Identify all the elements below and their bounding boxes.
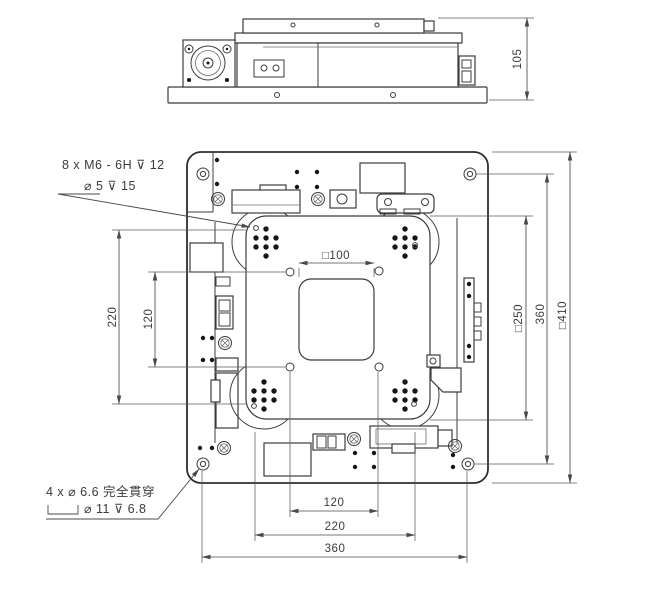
top-protrusion-block	[360, 163, 405, 193]
tapped-callout-line2: ⌀ 5 ⊽ 15	[84, 179, 136, 193]
screw-icon	[218, 442, 231, 455]
screw-icon	[449, 440, 462, 453]
top-plate-side	[243, 19, 424, 33]
central-aperture	[299, 279, 374, 360]
top-right-bracket	[377, 194, 434, 213]
screw-icon	[219, 337, 232, 350]
screw-icon	[348, 433, 361, 446]
mid-shelf	[235, 33, 462, 43]
through-callout-line1: 4 x ⌀ 6.6 完全貫穿	[46, 484, 155, 499]
screw-icon	[212, 193, 225, 206]
bottom-protrusion-block	[264, 443, 311, 476]
base-plate-side	[168, 87, 487, 103]
dim-bottom-outer: 360	[325, 543, 346, 555]
dim-side-height: 105	[512, 49, 524, 70]
counterbore-icon	[48, 505, 78, 514]
dim-right-outer: □410	[557, 301, 569, 329]
top-plate-tab	[424, 21, 434, 31]
callout-through-holes: 4 x ⌀ 6.6 完全貫穿 ⌀ 11 ⊽ 6.8	[46, 469, 199, 519]
side-elevation-view: 105	[168, 18, 534, 103]
dim-left-outer: 220	[107, 307, 119, 328]
screw-icon	[312, 193, 325, 206]
plan-view	[187, 152, 488, 483]
drawing-svg: 105	[0, 0, 665, 595]
dim-bottom-middle: 220	[325, 521, 346, 533]
through-callout-line2: ⌀ 11 ⊽ 6.8	[84, 502, 146, 516]
dim-bottom-inner: 120	[324, 497, 345, 509]
tapped-callout-line1: 8 x M6 - 6H ⊽ 12	[62, 158, 165, 172]
dim-left-inner: 120	[143, 309, 155, 330]
dim-right-inner: □250	[513, 304, 525, 332]
dim-aperture: □100	[322, 250, 350, 262]
engineering-drawing-page: 105	[0, 0, 665, 595]
stage-body-side	[237, 43, 458, 87]
dim-right-middle: 360	[535, 304, 547, 325]
